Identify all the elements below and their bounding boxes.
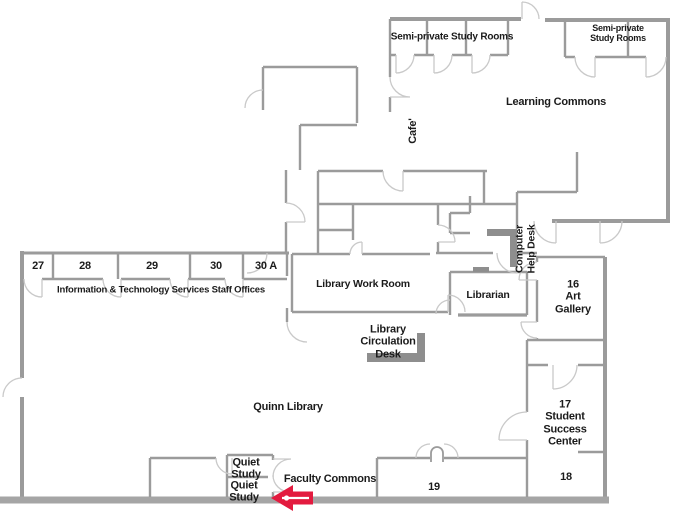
label-computer-help-desk: Computer Help Desk — [514, 225, 538, 274]
label-librarian: Librarian — [466, 290, 509, 302]
librarian-desk-stub — [473, 267, 489, 272]
label-office-27: 27 — [32, 260, 44, 272]
label-room-19: 19 — [428, 481, 440, 493]
label-learning-commons: Learning Commons — [506, 96, 606, 108]
label-art-gallery: 16 Art Gallery — [555, 279, 591, 316]
label-quinn-library: Quinn Library — [253, 401, 323, 413]
label-faculty-commons: Faculty Commons — [284, 473, 376, 485]
label-quiet-study-lower: Quiet Study — [229, 480, 259, 505]
label-library-work-room: Library Work Room — [316, 279, 410, 291]
label-room-18: 18 — [560, 471, 572, 483]
label-cafe: Cafe' — [407, 118, 419, 143]
label-office-30: 30 — [210, 260, 222, 272]
label-office-30a: 30 A — [255, 260, 277, 272]
double-door-icon — [431, 447, 443, 462]
location-arrow-dot — [284, 495, 289, 500]
library-floor-plan: Semi-private Study Rooms Semi-private St… — [0, 0, 680, 514]
label-circulation-desk: Library Circulation Desk — [360, 324, 415, 361]
label-it-services-offices: Information & Technology Services Staff … — [57, 286, 265, 297]
label-office-29: 29 — [146, 260, 158, 272]
location-arrow-icon — [271, 485, 313, 511]
label-office-28: 28 — [79, 260, 91, 272]
label-quiet-study-upper: Quiet Study — [231, 457, 261, 482]
label-semi-private-study-rooms-right: Semi-private Study Rooms — [587, 23, 649, 43]
label-semi-private-study-rooms-left: Semi-private Study Rooms — [391, 31, 513, 42]
label-student-success-center: 17 Student Success Center — [543, 398, 586, 447]
